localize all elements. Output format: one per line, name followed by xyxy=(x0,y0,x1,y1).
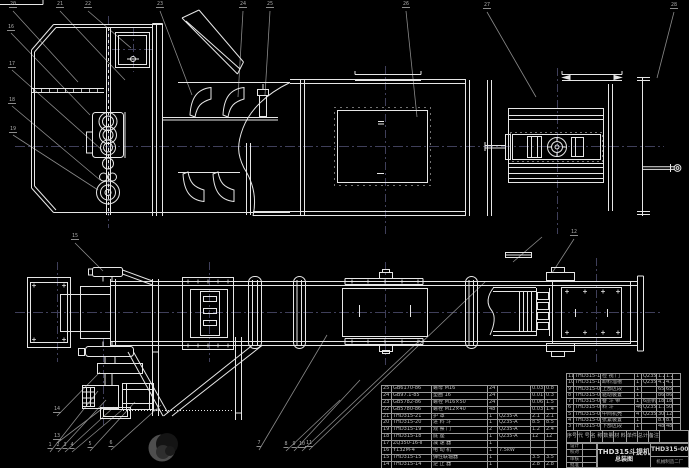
bom-cell xyxy=(642,424,657,429)
bom-cell: ZQ350-16-Ⅱ xyxy=(392,441,432,447)
bom-cell: THD315-21 xyxy=(392,414,432,420)
bom-cell: 65 xyxy=(657,387,665,392)
bom-cell xyxy=(498,455,531,461)
bom-cell: THD315-04 xyxy=(574,418,601,423)
bom-cell: 24 xyxy=(488,393,498,399)
bom-cell: GB97.1-85 xyxy=(392,393,432,399)
drawing-title-line1: THD315斗提机 xyxy=(598,448,650,456)
bom-cell: 1 xyxy=(488,441,498,447)
bom-cell: 1.2 xyxy=(657,374,665,379)
bom-cell: 螺栓 M12×40 xyxy=(432,407,488,413)
bom-cell: THD315-19 xyxy=(392,427,432,433)
bom-cell: 1 xyxy=(635,418,642,423)
bom-cell: THD315-07 xyxy=(574,399,601,404)
bom-cell: 进 料 斗 xyxy=(432,420,488,426)
balloon-17: 17 xyxy=(8,62,16,68)
bom-header-row: 序号 代 号 名 称 数量 材 料 单件 总计 备注 xyxy=(566,430,689,443)
bom-cell: THD315-05 xyxy=(574,412,601,417)
bom-cell: 1 xyxy=(488,414,498,420)
bom-cell: 48 xyxy=(488,407,498,413)
bom-header-note: 备注 xyxy=(649,431,660,442)
balloon-6: 6 xyxy=(108,441,113,447)
bom-cell: 0.3 xyxy=(545,393,558,399)
bom-cell: 4 xyxy=(567,418,574,423)
bom-cell: THD315-06 xyxy=(574,405,601,410)
bom-cell xyxy=(673,393,681,398)
bom-cell xyxy=(673,405,681,410)
bom-cell: 卸料溜槽 xyxy=(601,380,635,385)
balloon-3: 3 xyxy=(62,443,67,449)
bom-cell: 48 xyxy=(665,424,673,429)
balloon-5: 5 xyxy=(87,442,92,448)
bom-cell: 6层帆布 xyxy=(642,399,657,404)
bom-cell: 1 xyxy=(488,420,498,426)
bom-row: 19THD315-19观 察 门2Q235-A1.22.4 xyxy=(382,427,558,434)
bom-cell: 24 xyxy=(382,393,392,399)
bom-cell xyxy=(545,441,558,447)
balloon-21: 21 xyxy=(56,2,64,8)
bom-cell xyxy=(642,387,657,392)
bom-cell: Q235-A xyxy=(498,414,531,420)
bom-cell: 0.03 xyxy=(531,386,545,392)
bom-cell: 下部区段 xyxy=(601,424,635,429)
bom-cell: 2 xyxy=(488,427,498,433)
bom-row: 21THD315-21护 罩1Q235-A2.12.1 xyxy=(382,414,558,421)
bom-cell: GB6170-86 xyxy=(392,386,432,392)
bom-cell: THD315-08 xyxy=(574,393,601,398)
bom-cell: 46 xyxy=(635,405,642,410)
bom-header-unit: 单件 xyxy=(627,431,638,442)
bom-cell: 弹性联轴器 xyxy=(432,455,488,461)
bom-cell xyxy=(673,424,681,429)
balloon-13: 13 xyxy=(53,434,61,440)
bom-cell: 1 xyxy=(635,380,642,385)
bom-cell: 3 xyxy=(567,424,574,429)
bom-cell: 1 xyxy=(488,434,498,440)
bom-cell: 1 xyxy=(488,455,498,461)
bom-cell xyxy=(673,399,681,404)
signature-grid: 设计 校对 审核 批准 xyxy=(567,444,598,467)
balloon-23: 23 xyxy=(156,2,164,8)
bom-cell: 4 xyxy=(635,412,642,417)
bom-cell: 4.2 xyxy=(665,380,673,385)
bom-header-matl: 材 料 xyxy=(614,431,627,442)
bom-cell: 1.2 xyxy=(665,374,673,379)
bom-cell: 1 xyxy=(635,374,642,379)
bom-cell xyxy=(498,407,531,413)
bom-cell: 2.8 xyxy=(531,462,545,468)
balloon-16: 16 xyxy=(7,25,15,31)
bom-cell: 1.5 xyxy=(545,400,558,406)
bom-cell: 料 斗 xyxy=(601,405,635,410)
bom-row: 17ZQ350-16-Ⅱ减 速 器1 xyxy=(382,441,558,448)
bom-cell: Q235-A xyxy=(642,412,657,417)
bom-cell: THD315-14 xyxy=(392,462,432,468)
bom-header-total: 总计 xyxy=(638,431,649,442)
balloon-1: 1 xyxy=(47,443,52,449)
bom-row: 24GB97.1-85垫圈 16240.010.3 xyxy=(382,393,558,400)
bom-cell: 8.6 xyxy=(665,418,673,423)
bom-cell: 1.2 xyxy=(531,427,545,433)
bom-cell: 检 视 门 xyxy=(601,374,635,379)
balloon-7: 7 xyxy=(256,441,261,447)
bom-cell: 8.5 xyxy=(545,420,558,426)
bom-cell: GB5780-86 xyxy=(392,407,432,413)
bom-cell: THD315-20 xyxy=(392,420,432,426)
bom-cell xyxy=(673,418,681,423)
bom-row: 15THD315-15弹性联轴器13.53.5 xyxy=(382,455,558,462)
bom-cell: 19 xyxy=(382,427,392,433)
bom-cell: 22 xyxy=(382,407,392,413)
bom-table-right: 11THD315-11检 视 门1Q235-A1.21.210THD315-10… xyxy=(566,373,681,431)
bom-row: 16Y132M-4电 动 机17.5kW xyxy=(382,448,558,455)
bom-cell xyxy=(498,441,531,447)
bom-row: 23GB5782-86螺栓 M16×50240.061.5 xyxy=(382,400,558,407)
bom-cell: 11 xyxy=(567,374,574,379)
bom-cell: Q235-A xyxy=(498,420,531,426)
bom-cell: 1 xyxy=(635,393,642,398)
balloon-15: 15 xyxy=(71,234,79,240)
bom-cell: 86 xyxy=(665,393,673,398)
bom-cell: 2.4 xyxy=(545,427,558,433)
bom-cell: 6 xyxy=(567,405,574,410)
balloon-20: 20 xyxy=(9,2,17,8)
bom-cell: THD315-09 xyxy=(574,387,601,392)
bom-header-name: 名 称 xyxy=(591,431,604,442)
bom-cell: 8 xyxy=(567,393,574,398)
bom-cell: 螺栓 M16×50 xyxy=(432,400,488,406)
bom-row: 25GB6170-86螺母 M16240.030.8 xyxy=(382,386,558,393)
bom-cell: 18 xyxy=(657,399,665,404)
balloon-24: 24 xyxy=(239,2,247,8)
watermark-stamp xyxy=(149,433,179,462)
bom-cell: 8.5 xyxy=(531,420,545,426)
bom-cell: THD315-15 xyxy=(392,455,432,461)
balloon-12: 12 xyxy=(570,230,578,236)
bom-cell: 2.1 xyxy=(545,414,558,420)
bom-cell xyxy=(545,448,558,454)
balloon-25: 25 xyxy=(266,2,274,8)
bom-cell: 5 xyxy=(567,412,574,417)
title-block: 设计 校对 审核 批准 THD315斗提机 总装图 THD315-00 机械制造… xyxy=(566,443,689,468)
drawing-title-line2: 总装图 xyxy=(615,456,633,463)
bom-cell: 1 xyxy=(488,462,498,468)
balloon-19: 19 xyxy=(9,127,17,133)
bom-cell: 8.6 xyxy=(657,418,665,423)
bom-cell: 逆 止 器 xyxy=(432,462,488,468)
bom-cell: 上部区段 xyxy=(601,387,635,392)
bom-cell: 螺母 M16 xyxy=(432,386,488,392)
bom-cell: 驱动装置 xyxy=(601,393,635,398)
company-name: 机械制造二厂 xyxy=(651,457,688,467)
bom-header-no: 序号 xyxy=(567,431,578,442)
bom-cell: 1.1 xyxy=(657,405,665,410)
balloon-28: 28 xyxy=(670,3,678,9)
balloon-4: 4 xyxy=(69,443,74,449)
bom-cell xyxy=(498,400,531,406)
bom-cell: Q235-A xyxy=(498,427,531,433)
bom-cell xyxy=(673,387,681,392)
bom-cell: 18 xyxy=(665,399,673,404)
bom-cell: 减 速 器 xyxy=(432,441,488,447)
bom-cell: Q235-A xyxy=(498,434,531,440)
bom-cell: GB5782-86 xyxy=(392,400,432,406)
bom-cell: 电 动 机 xyxy=(432,448,488,454)
bom-cell: 观 察 门 xyxy=(432,427,488,433)
bom-row: 14THD315-14逆 止 器12.82.8 xyxy=(382,462,558,468)
bom-cell xyxy=(642,418,657,423)
bom-cell: 畚 斗 带 xyxy=(601,399,635,404)
bom-cell: 1.4 xyxy=(545,407,558,413)
balloon-18: 18 xyxy=(8,98,16,104)
bom-cell xyxy=(531,448,545,454)
bom-cell: 20 xyxy=(382,420,392,426)
bom-cell xyxy=(531,441,545,447)
bom-cell: 23 xyxy=(382,400,392,406)
bom-cell xyxy=(642,393,657,398)
bom-cell: 7.5kW xyxy=(498,448,531,454)
bom-cell: 7 xyxy=(567,399,574,404)
bom-cell: 86 xyxy=(657,393,665,398)
bom-row: 18THD315-18底 座1Q235-A1212 xyxy=(382,434,558,441)
balloon-9: 9 xyxy=(291,442,296,448)
bom-cell: THD315-11 xyxy=(574,374,601,379)
bom-cell: 1 xyxy=(635,399,642,404)
bom-cell: 30 xyxy=(657,412,665,417)
bom-cell: 12 xyxy=(545,434,558,440)
bom-cell: 16 xyxy=(382,448,392,454)
bom-row: 22GB5780-86螺栓 M12×40480.031.4 xyxy=(382,407,558,414)
bom-cell: 2.8 xyxy=(545,462,558,468)
bom-cell: 张紧装置 xyxy=(601,418,635,423)
balloon-14: 14 xyxy=(53,407,61,413)
bom-cell: 0.03 xyxy=(531,407,545,413)
sign-label-approve: 批准 xyxy=(567,463,583,468)
bom-cell: 4.2 xyxy=(657,380,665,385)
bom-cell: 14 xyxy=(382,462,392,468)
bom-cell: 1 xyxy=(635,387,642,392)
bom-cell xyxy=(498,386,531,392)
bom-cell: 12 xyxy=(531,434,545,440)
bom-cell: Y132M-4 xyxy=(392,448,432,454)
bom-cell: THD315-10 xyxy=(574,380,601,385)
bom-cell xyxy=(498,462,531,468)
bom-header-qty: 数量 xyxy=(603,431,614,442)
bom-row: 20THD315-20进 料 斗1Q235-A8.58.5 xyxy=(382,420,558,427)
balloon-26: 26 xyxy=(402,2,410,8)
bom-cell: Q235-A xyxy=(642,380,657,385)
bom-cell: 0.06 xyxy=(531,400,545,406)
bom-cell xyxy=(673,412,681,417)
cad-viewport: 2021222324252627281617181915141312345678… xyxy=(0,0,689,468)
bom-cell: 垫圈 16 xyxy=(432,393,488,399)
bom-cell: Q235-A xyxy=(642,374,657,379)
bom-cell xyxy=(673,374,681,379)
bom-cell: 24 xyxy=(488,400,498,406)
balloon-22: 22 xyxy=(84,2,92,8)
bom-table-left: 25GB6170-86螺母 M16240.030.824GB97.1-85垫圈 … xyxy=(381,385,558,468)
bom-cell: 18 xyxy=(382,434,392,440)
bom-cell: 17 xyxy=(382,441,392,447)
bom-cell: 1 xyxy=(635,424,642,429)
bom-cell: 3.5 xyxy=(531,455,545,461)
bom-cell: 0.8 xyxy=(545,386,558,392)
bom-cell: 50.6 xyxy=(665,405,673,410)
bom-cell: 15 xyxy=(382,455,392,461)
bom-cell: 65 xyxy=(665,387,673,392)
bom-cell: 25 xyxy=(382,386,392,392)
bom-cell: 底 座 xyxy=(432,434,488,440)
bom-cell: 120 xyxy=(665,412,673,417)
bom-cell: 9 xyxy=(567,387,574,392)
bom-cell: 0.01 xyxy=(531,393,545,399)
balloon-27: 27 xyxy=(483,3,491,9)
bom-cell xyxy=(498,393,531,399)
balloon-8: 8 xyxy=(283,442,288,448)
bom-cell: 10 xyxy=(567,380,574,385)
drawing-number: THD315-00 xyxy=(651,444,688,457)
bom-cell: 48 xyxy=(657,424,665,429)
balloon-11: 11 xyxy=(305,441,313,447)
bom-cell: Q235-A xyxy=(642,405,657,410)
bom-cell: 中间机壳 xyxy=(601,412,635,417)
bom-header-code: 代 号 xyxy=(578,431,591,442)
bom-cell: 护 罩 xyxy=(432,414,488,420)
drawing-title: THD315斗提机 总装图 xyxy=(598,444,651,467)
bom-cell: 1 xyxy=(488,448,498,454)
bom-cell: THD315-03 xyxy=(574,424,601,429)
bom-cell xyxy=(673,380,681,385)
bom-cell: THD315-18 xyxy=(392,434,432,440)
bom-cell: 24 xyxy=(488,386,498,392)
bom-cell: 3.5 xyxy=(545,455,558,461)
bom-cell: 2.1 xyxy=(531,414,545,420)
balloon-2: 2 xyxy=(55,443,60,449)
bom-cell: 21 xyxy=(382,414,392,420)
